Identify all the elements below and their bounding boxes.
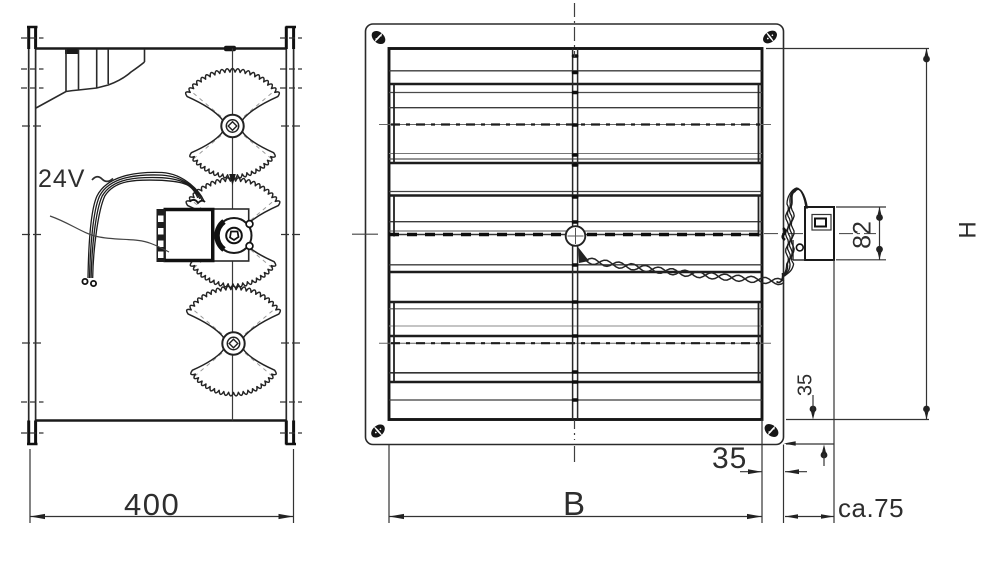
svg-text:B: B <box>563 485 585 522</box>
svg-text:400: 400 <box>124 487 180 522</box>
svg-text:ca.75: ca.75 <box>838 493 904 523</box>
svg-text:82: 82 <box>849 221 877 249</box>
svg-text:35: 35 <box>794 374 816 396</box>
svg-text:35: 35 <box>712 442 747 475</box>
svg-text:H: H <box>954 221 981 238</box>
svg-text:24V: 24V <box>38 165 85 193</box>
